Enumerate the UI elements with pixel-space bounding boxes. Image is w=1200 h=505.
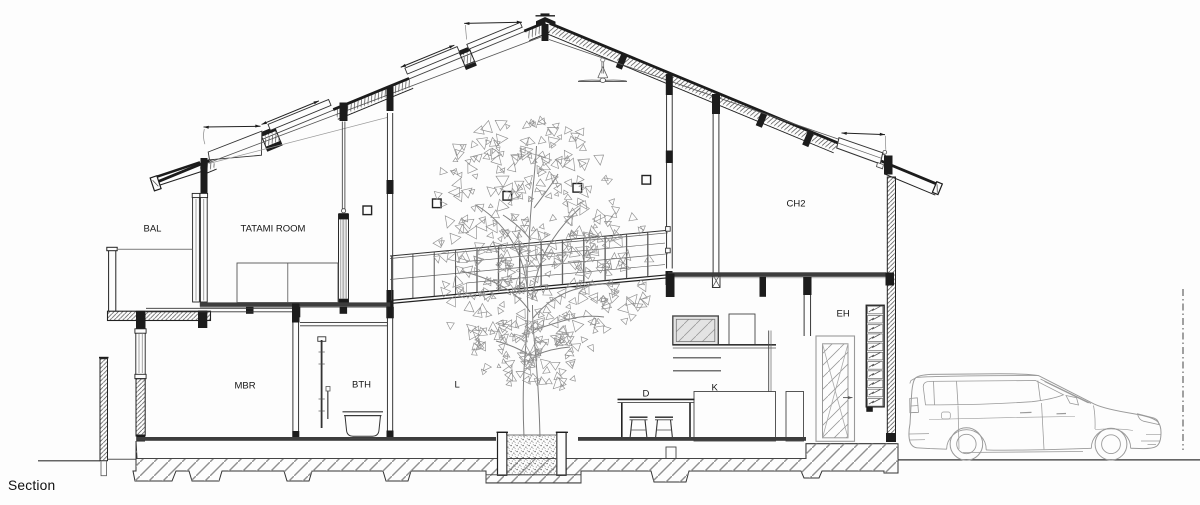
svg-text:TATAMI ROOM: TATAMI ROOM (241, 224, 306, 235)
svg-text:L: L (455, 380, 460, 391)
svg-text:CH2: CH2 (787, 199, 806, 210)
svg-text:Section: Section (8, 478, 55, 493)
svg-text:EH: EH (837, 309, 850, 320)
svg-text:MBR: MBR (235, 381, 256, 392)
svg-text:D: D (643, 389, 650, 400)
svg-text:BAL: BAL (144, 224, 162, 235)
svg-text:K: K (712, 383, 719, 394)
svg-text:BTH: BTH (352, 380, 371, 391)
